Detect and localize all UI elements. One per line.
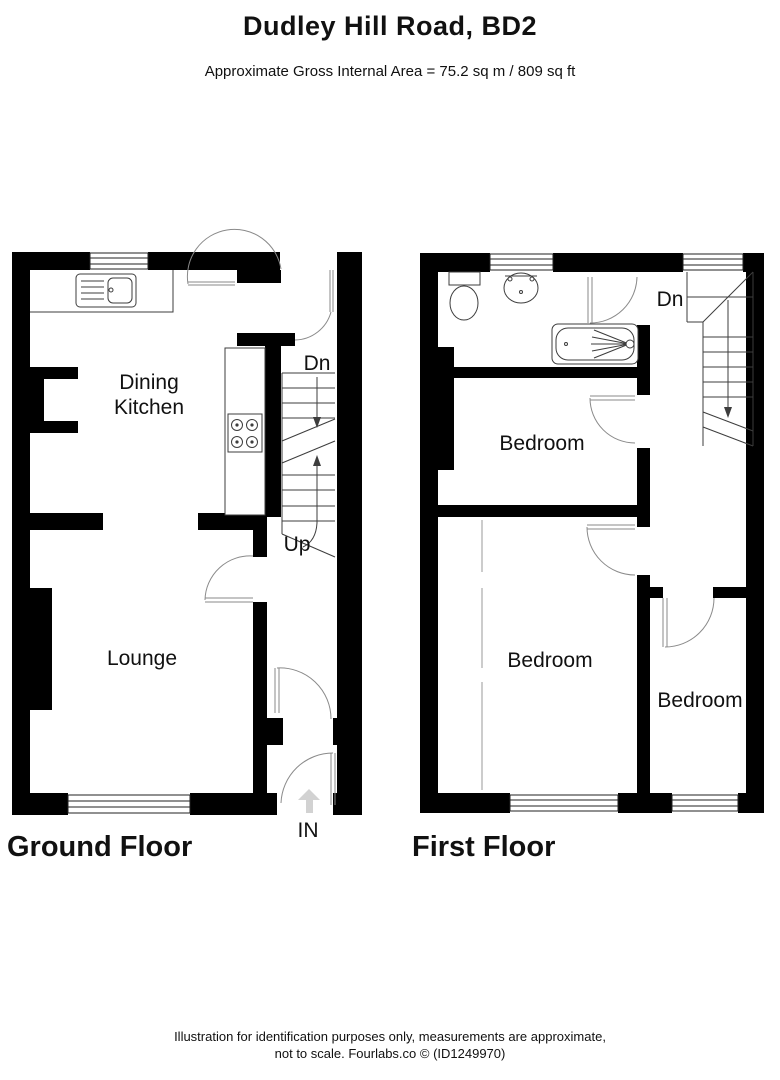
wall	[253, 513, 267, 557]
stairs-down-label: Dn	[657, 288, 684, 311]
stairs-up-arrow-head	[313, 455, 321, 466]
window	[510, 795, 618, 811]
wall	[420, 253, 490, 272]
window	[68, 795, 190, 813]
chimney-recess	[44, 379, 78, 421]
floorplan-canvas: Dining Kitchen Lounge Dn Up IN	[0, 0, 780, 1080]
wall	[738, 793, 764, 813]
wall	[12, 513, 103, 530]
staircase	[687, 272, 753, 446]
wall	[637, 325, 650, 395]
window	[672, 795, 738, 811]
room-label-dining-kitchen: Dining	[119, 371, 179, 394]
wall	[420, 253, 438, 813]
wall	[650, 587, 663, 598]
staircase	[282, 373, 335, 557]
wall	[237, 270, 281, 283]
sink-icon	[76, 274, 136, 307]
wall	[265, 346, 281, 517]
entrance-arrow-icon	[298, 789, 320, 813]
room-label-lounge: Lounge	[107, 647, 177, 670]
wall	[190, 793, 277, 815]
bath-icon	[552, 324, 638, 364]
stairs-down-arrow-head	[724, 407, 732, 418]
wall	[12, 252, 90, 270]
window	[683, 254, 743, 270]
toilet-icon	[449, 272, 480, 320]
entrance-label: IN	[298, 819, 319, 842]
wall	[148, 252, 280, 270]
chimney-breast	[438, 347, 454, 470]
wall	[420, 793, 510, 813]
hob-icon	[228, 414, 262, 452]
window	[90, 253, 148, 269]
ground-floor-plan: Dining Kitchen Lounge Dn Up IN	[12, 229, 362, 842]
wall	[637, 575, 650, 793]
wall	[237, 333, 295, 346]
wall	[12, 252, 30, 815]
chimney-breast	[30, 588, 52, 710]
door	[588, 277, 637, 323]
wall	[438, 367, 650, 378]
door	[663, 598, 714, 647]
disclaimer-line1: Illustration for identification purposes…	[0, 1028, 780, 1045]
basin-icon	[504, 273, 538, 303]
door	[587, 525, 635, 575]
wall	[12, 793, 68, 815]
room-label-bedroom: Bedroom	[657, 689, 742, 712]
room-label-dining-kitchen: Kitchen	[114, 396, 184, 419]
wall	[333, 718, 355, 745]
wall	[253, 718, 283, 745]
wall	[713, 587, 746, 598]
stairs-down-arrow-head	[313, 417, 321, 428]
door	[205, 556, 253, 602]
wall	[253, 602, 267, 793]
stairs-down-label: Dn	[304, 352, 331, 375]
wall	[553, 253, 683, 272]
disclaimer-line2: not to scale. Fourlabs.co © (ID1249970)	[0, 1045, 780, 1062]
room-label-bedroom: Bedroom	[499, 432, 584, 455]
door	[275, 668, 331, 719]
room-label-bedroom: Bedroom	[507, 649, 592, 672]
wall	[618, 793, 672, 813]
rear-door	[295, 270, 333, 340]
first-floor-title: First Floor	[412, 831, 555, 864]
stairs-up-label: Up	[284, 533, 311, 556]
door	[590, 396, 635, 443]
ground-floor-title: Ground Floor	[7, 831, 192, 864]
first-floor-plan: Dn Bedroom Bedroom Bedroom	[420, 253, 764, 813]
window	[490, 254, 553, 270]
wall	[438, 505, 650, 517]
wall	[333, 793, 362, 815]
